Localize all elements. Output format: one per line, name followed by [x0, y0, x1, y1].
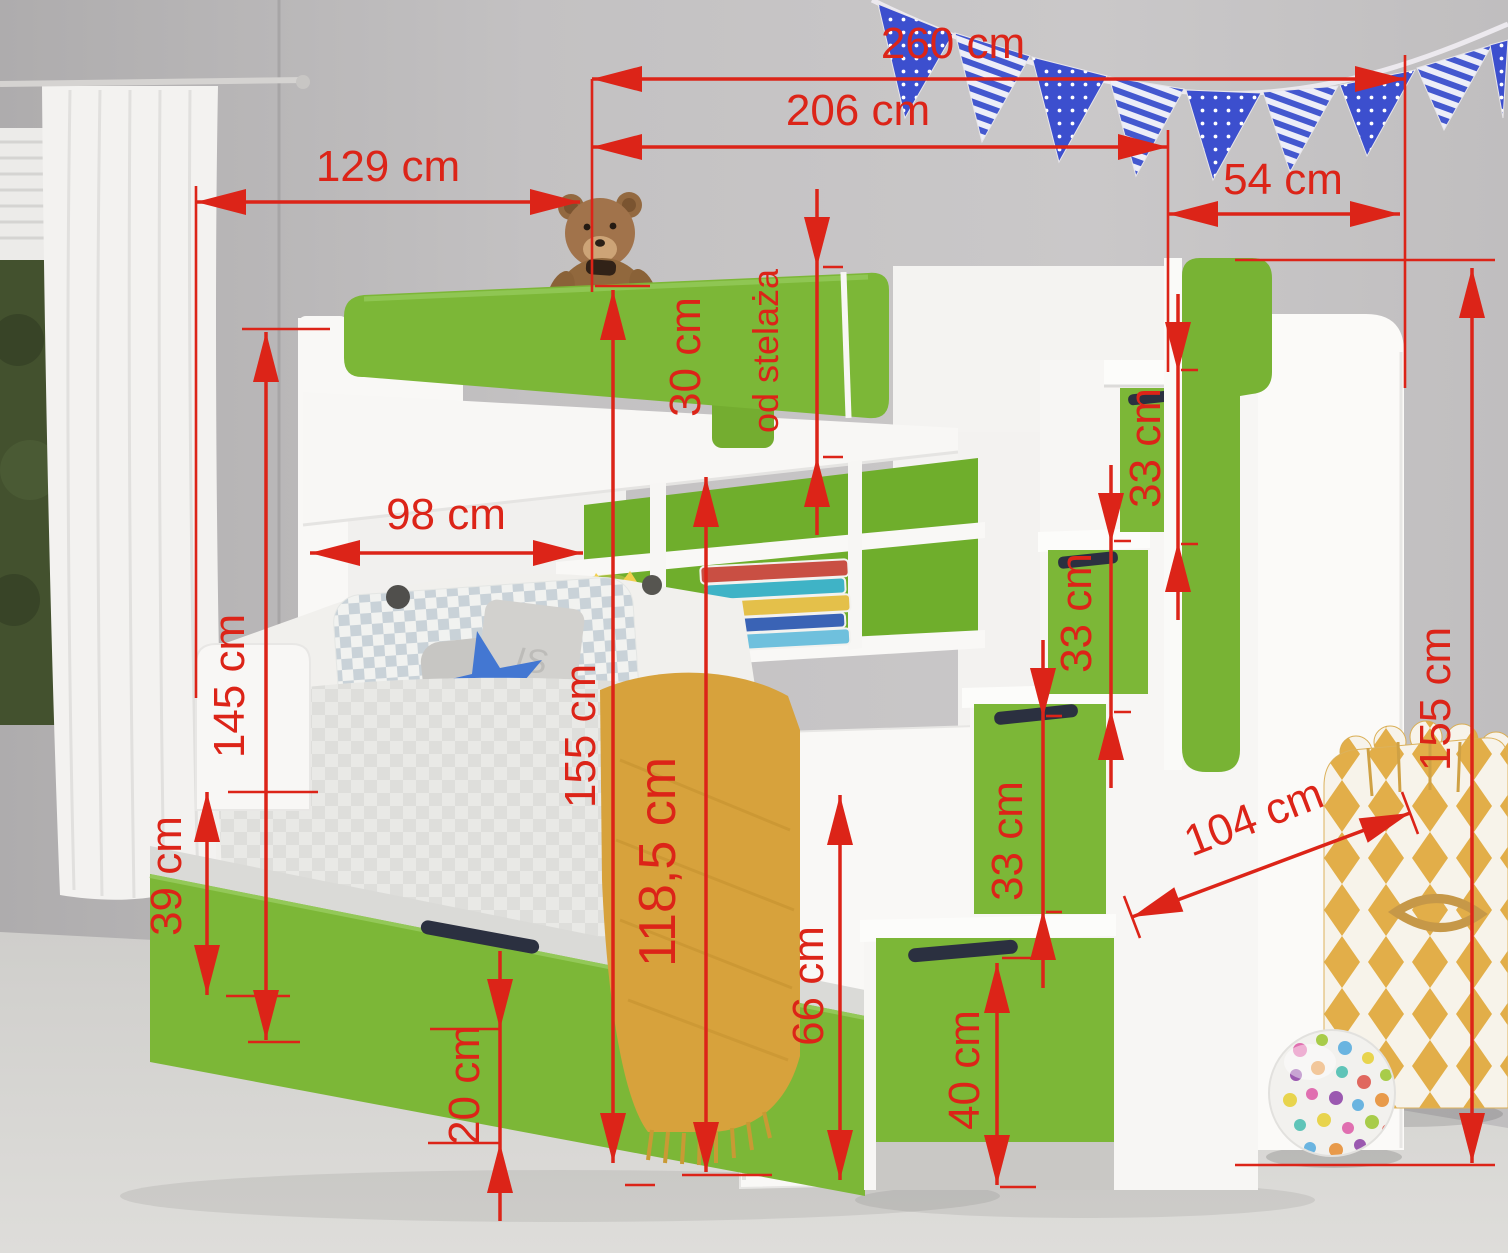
product-dimension-image: IS [0, 0, 1508, 1253]
scene: IS [0, 0, 1508, 1253]
stair-drawer [876, 938, 1114, 1142]
teddy-bow [585, 259, 616, 276]
polka-dot-ball [1269, 1030, 1395, 1157]
lower-headboard [196, 644, 310, 810]
pompom [386, 585, 410, 609]
stair-drawer [1048, 550, 1148, 694]
curtain-rod [0, 80, 305, 84]
stair-drawer [974, 704, 1106, 914]
stairs-plinth [876, 1142, 1114, 1190]
pompom [642, 575, 662, 595]
mustard-blanket [600, 673, 800, 1165]
